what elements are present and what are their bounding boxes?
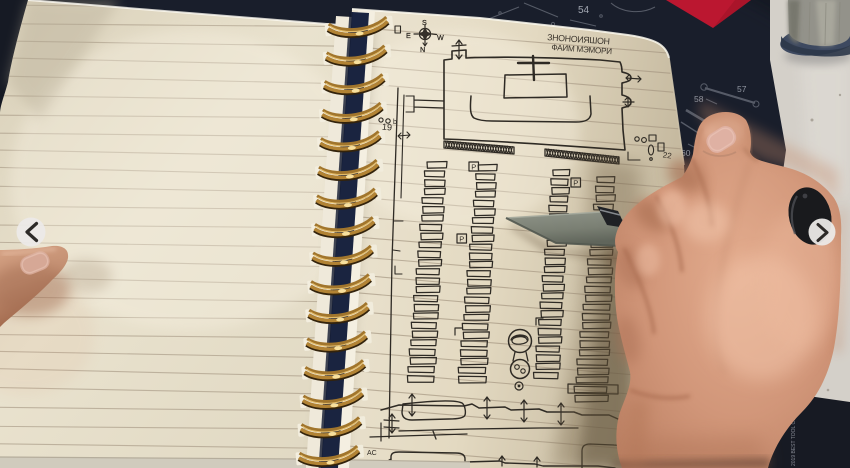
svg-text:54: 54 — [578, 5, 590, 16]
svg-text:b: b — [393, 119, 397, 126]
svg-text:P: P — [573, 179, 578, 188]
svg-text:22: 22 — [662, 150, 673, 160]
svg-text:W: W — [437, 33, 444, 42]
svg-text:P: P — [459, 235, 464, 244]
svg-text:57: 57 — [737, 84, 747, 94]
svg-text:S: S — [422, 18, 427, 27]
svg-text:AC: AC — [367, 450, 377, 457]
svg-text:2019 BEST TOOL CO: 2019 BEST TOOL CO — [791, 417, 797, 466]
svg-text:P: P — [471, 163, 476, 172]
svg-text:E: E — [406, 31, 411, 40]
svg-text:N: N — [420, 45, 425, 54]
